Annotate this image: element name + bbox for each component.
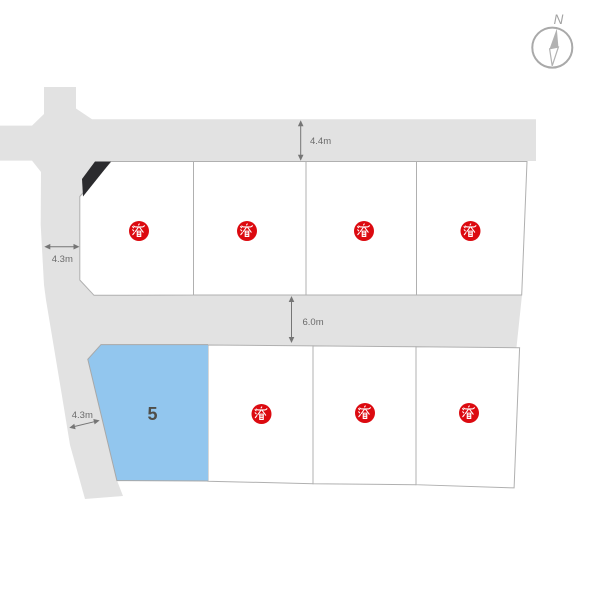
svg-text:4.4m: 4.4m xyxy=(310,136,331,147)
svg-text:5: 5 xyxy=(147,404,157,424)
svg-text:4.3m: 4.3m xyxy=(52,254,73,265)
svg-text:4.3m: 4.3m xyxy=(72,410,93,421)
svg-text:6.0m: 6.0m xyxy=(303,317,324,328)
svg-text:N: N xyxy=(554,12,564,27)
